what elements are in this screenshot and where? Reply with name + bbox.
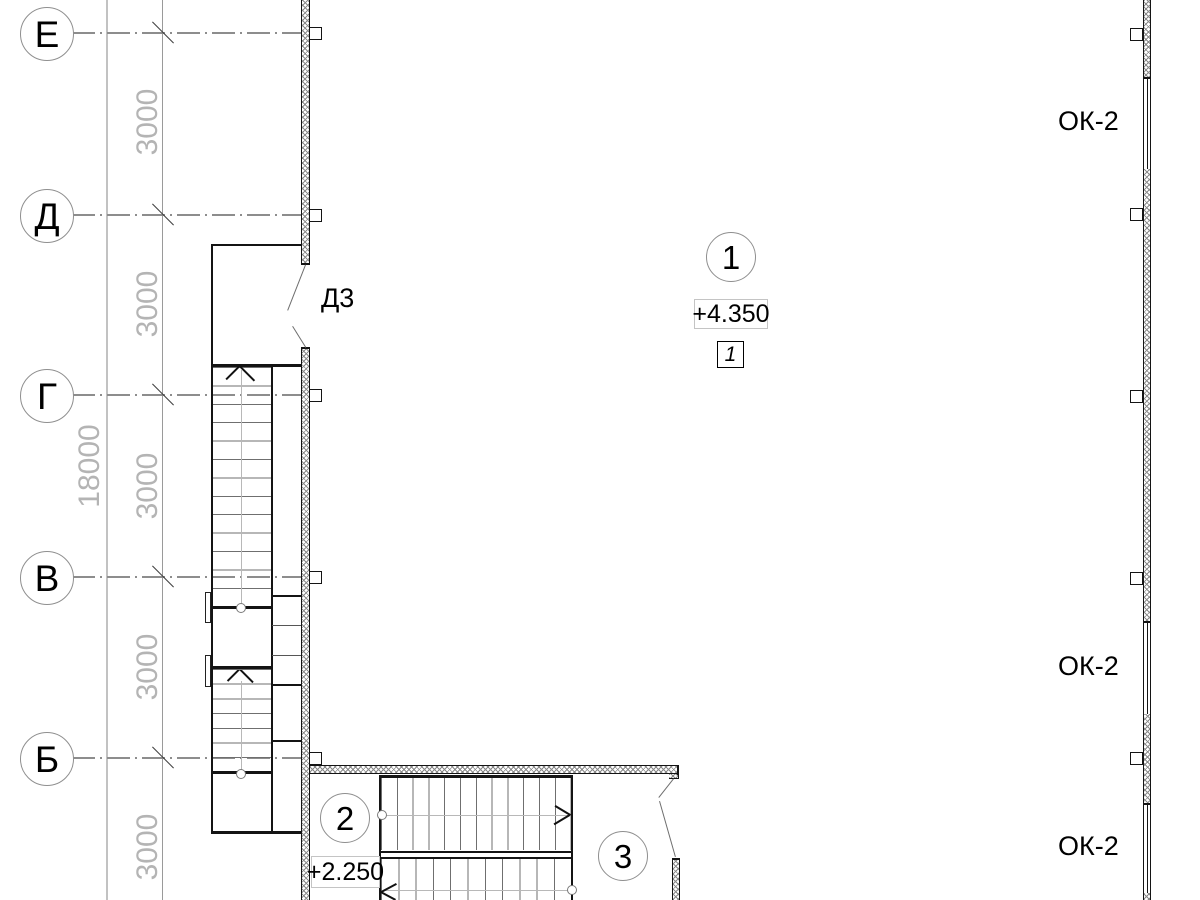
grid-letter: Г — [37, 378, 57, 415]
callout-number: 2 — [336, 802, 354, 835]
stair2-treads-lower — [381, 859, 571, 900]
dim-text-bay-2: 3000 — [128, 254, 168, 354]
wall-cap — [677, 765, 679, 775]
grid-letter: В — [35, 560, 60, 597]
dim-text-bay-1: 3000 — [128, 72, 168, 172]
callout-circle-2: 2 — [320, 793, 370, 843]
door-leaf-line — [659, 801, 676, 857]
stair-treads-upper-flight — [213, 367, 272, 607]
door-leaf-line — [658, 778, 674, 798]
callout-number: 3 — [614, 840, 632, 873]
stair-treads-lower-flight — [213, 669, 272, 772]
stair2-walk-line — [385, 890, 570, 891]
pilaster — [309, 209, 322, 222]
wall-stub-lower — [672, 858, 680, 900]
window-label: ОК-2 — [1058, 108, 1119, 135]
grid-line-d — [72, 214, 301, 215]
door-label: Д3 — [321, 285, 354, 312]
dim-text-bay-3: 3000 — [128, 436, 168, 536]
window-ok2-3 — [1143, 805, 1151, 893]
elevation-box-lower: +2.250 — [311, 856, 380, 888]
stair2-treads-upper — [381, 778, 571, 850]
stair2-walk-line — [383, 815, 568, 816]
handrail — [205, 655, 211, 687]
grid-letter: Д — [34, 198, 59, 235]
grid-letter: Е — [35, 16, 60, 53]
stair-string-line — [271, 364, 273, 833]
window-ok2-2 — [1143, 623, 1151, 714]
walk-line — [241, 681, 242, 772]
wall-right-seg — [1143, 169, 1151, 623]
stair-room-top-wall — [211, 244, 301, 246]
pilaster — [1130, 390, 1143, 403]
pilaster — [1130, 28, 1143, 41]
grid-bubble-g: Г — [20, 369, 74, 423]
callout-circle-3: 3 — [598, 831, 648, 881]
dim-text-bay-5: 3000 — [128, 797, 168, 897]
grid-line-e — [72, 32, 301, 33]
door-leaf-line — [292, 326, 306, 348]
elevation-box-upper: +4.350 — [694, 299, 768, 329]
grid-bubble-d: Д — [20, 189, 74, 243]
window-label: ОК-2 — [1058, 653, 1119, 680]
stair-room-bottom-wall — [211, 831, 301, 834]
floor-plan: Е Д Г В Б 18000 3000 3000 3000 3000 3000… — [0, 0, 1200, 900]
wall-bottom — [310, 765, 679, 774]
grid-bubble-v: В — [20, 551, 74, 605]
callout-circle-1: 1 — [706, 232, 756, 282]
window-label: ОК-2 — [1058, 833, 1119, 860]
walk-line-start-circle — [567, 885, 577, 895]
pilaster — [309, 389, 322, 402]
strip-step-edge — [272, 625, 301, 626]
walk-line-start-circle — [236, 603, 246, 613]
walk-line-start-circle — [377, 810, 387, 820]
strip-step-edge — [272, 595, 301, 597]
strip-step-edge — [272, 655, 301, 656]
grid-letter: Б — [35, 741, 59, 778]
pilaster — [309, 27, 322, 40]
pilaster — [1130, 752, 1143, 765]
wall-right-seg — [1143, 0, 1151, 79]
callout-number: 1 — [722, 241, 740, 274]
wall-left-lower — [301, 347, 310, 900]
handrail — [205, 592, 211, 623]
strip-step-edge — [272, 684, 301, 686]
walk-line-start-circle — [236, 769, 246, 779]
dim-text-total: 18000 — [70, 406, 110, 526]
dim-text-bay-4: 3000 — [128, 617, 168, 717]
wall-cap — [672, 858, 680, 860]
grid-bubble-b: Б — [20, 732, 74, 786]
window-ok2-1 — [1143, 79, 1151, 169]
pilaster — [309, 571, 322, 584]
wall-right-seg — [1143, 893, 1151, 900]
pilaster — [1130, 572, 1143, 585]
pilaster — [1130, 208, 1143, 221]
level-number-box: 1 — [717, 341, 744, 368]
grid-bubble-e: Е — [20, 7, 74, 61]
wall-left-upper — [301, 0, 310, 265]
wall-right-seg — [1143, 714, 1151, 805]
pilaster — [309, 752, 322, 765]
strip-step-edge — [272, 740, 301, 742]
door-leaf-line — [287, 265, 306, 311]
walk-line — [241, 370, 242, 604]
stair2-divider — [379, 851, 573, 853]
